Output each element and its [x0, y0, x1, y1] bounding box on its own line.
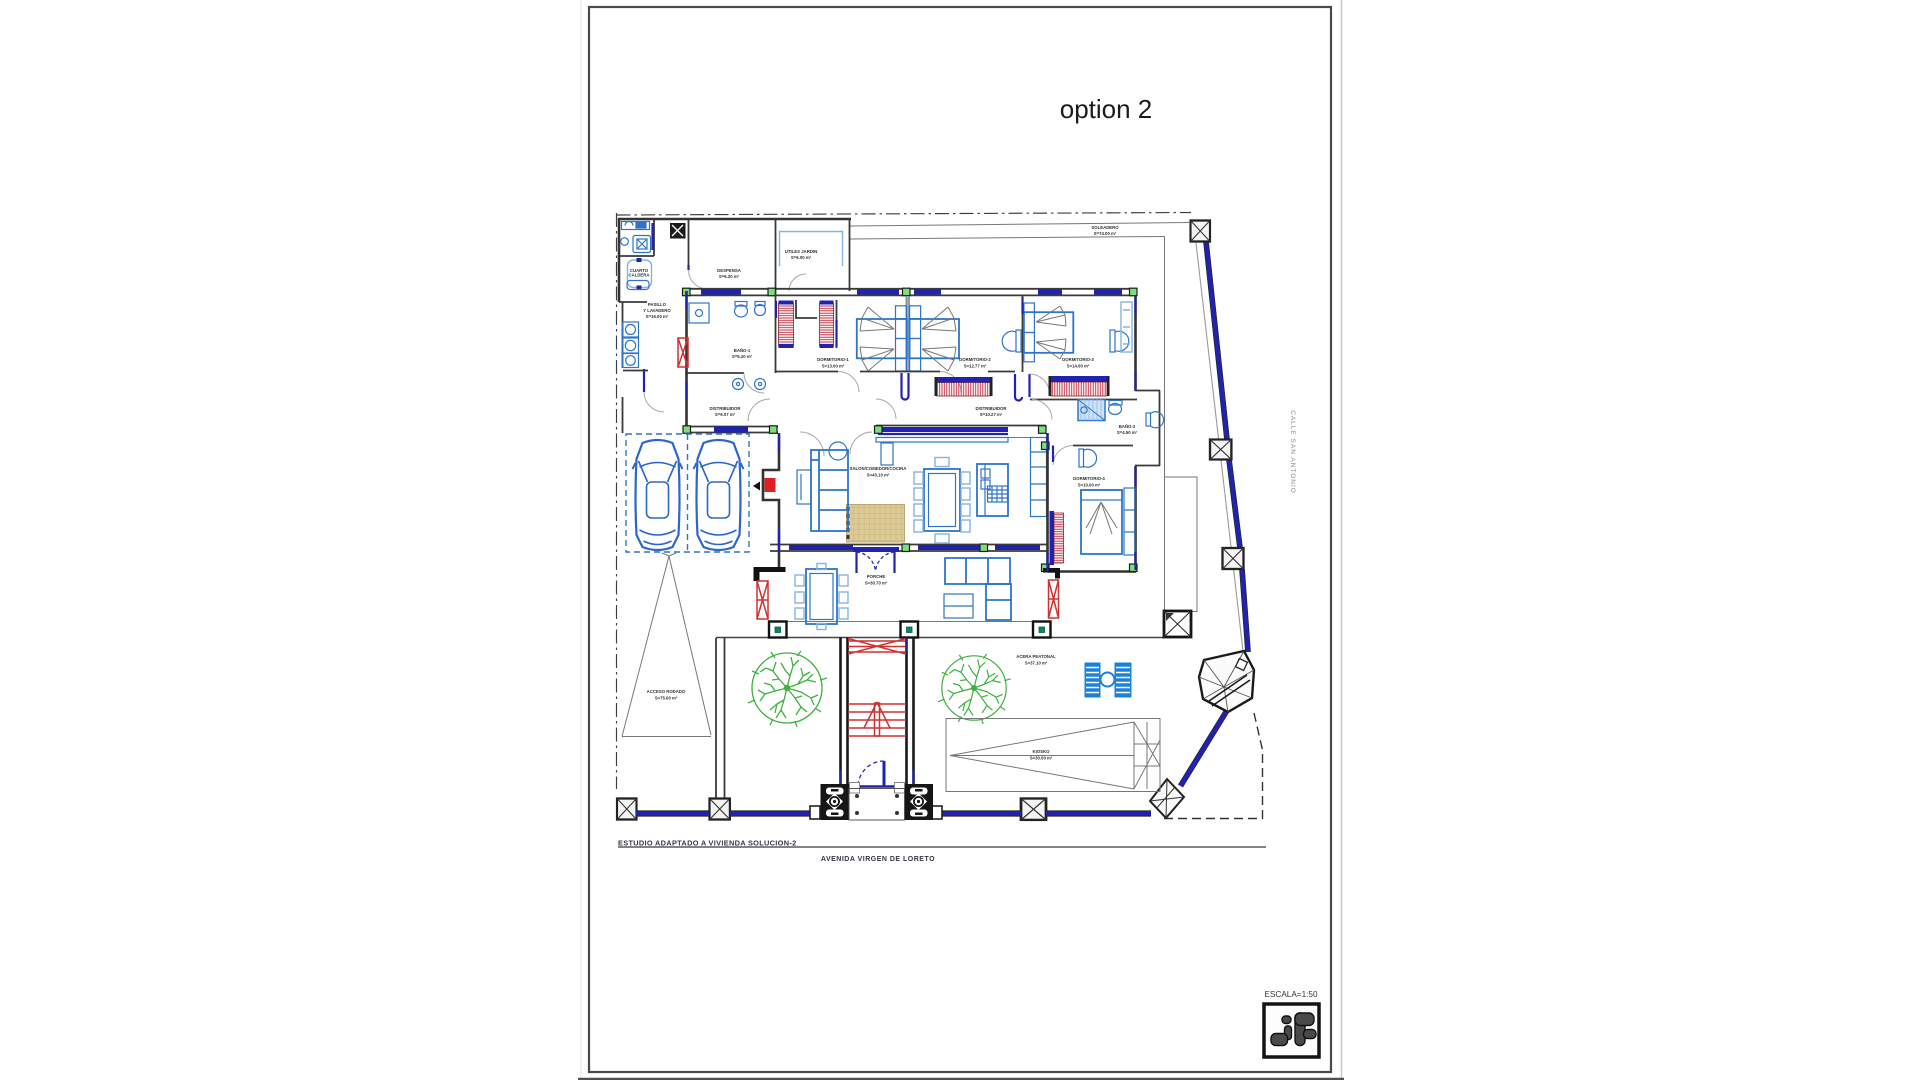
svg-text:ESTUDIO ADAPTADO A VIVIENDA S: ESTUDIO ADAPTADO A VIVIENDA SOLUCION-2	[618, 839, 797, 848]
svg-text:S=13.00 m²: S=13.00 m²	[822, 364, 845, 369]
svg-text:option 2: option 2	[1060, 94, 1153, 124]
svg-text:BAÑO-2: BAÑO-2	[1119, 424, 1136, 429]
svg-text:S=9.07 m²: S=9.07 m²	[715, 412, 736, 417]
svg-text:PORCHE: PORCHE	[867, 574, 886, 579]
svg-text:S=5.20 m²: S=5.20 m²	[732, 354, 753, 359]
svg-text:S=12.77 m²: S=12.77 m²	[964, 364, 987, 369]
svg-text:S=74.00 m²: S=74.00 m²	[1094, 231, 1117, 236]
svg-text:DORMITORIO-2: DORMITORIO-2	[959, 357, 991, 362]
svg-text:BAÑO-1: BAÑO-1	[734, 348, 751, 353]
svg-text:DESPENSA: DESPENSA	[717, 268, 741, 273]
svg-text:ACERA PEATONAL: ACERA PEATONAL	[1016, 654, 1056, 659]
svg-text:S=10.00 m²: S=10.00 m²	[1078, 483, 1101, 488]
svg-text:Y LAVADERO: Y LAVADERO	[643, 308, 671, 313]
svg-text:ESCALA=1:50: ESCALA=1:50	[1264, 990, 1317, 999]
svg-text:AVENIDA VIRGEN DE LORETO: AVENIDA VIRGEN DE LORETO	[821, 856, 935, 863]
svg-text:S=30.70 m²: S=30.70 m²	[865, 581, 888, 586]
svg-text:DORMITORIO-1: DORMITORIO-1	[817, 357, 849, 362]
svg-text:DORMITORIO-4: DORMITORIO-4	[1073, 476, 1105, 481]
svg-text:KIOSKO: KIOSKO	[1033, 749, 1051, 754]
svg-text:S=6.20 m²: S=6.20 m²	[719, 274, 740, 279]
svg-text:S=10.27 m²: S=10.27 m²	[980, 412, 1003, 417]
svg-text:PASILLO: PASILLO	[648, 302, 667, 307]
svg-text:CALLE SAN ANTONIO: CALLE SAN ANTONIO	[1289, 410, 1296, 494]
svg-text:DISTRIBUIDOR: DISTRIBUIDOR	[975, 406, 1007, 411]
svg-text:S=4.50 m²: S=4.50 m²	[1117, 430, 1138, 435]
svg-text:DISTRIBUIDOR: DISTRIBUIDOR	[709, 406, 741, 411]
svg-text:UTILES JARDIN: UTILES JARDIN	[785, 249, 817, 254]
svg-text:CALDERA: CALDERA	[628, 273, 649, 278]
svg-text:S=43.10 m²: S=43.10 m²	[867, 473, 890, 478]
svg-text:S=30.00 m²: S=30.00 m²	[1030, 756, 1053, 761]
svg-text:SALON/COMEDOR/COCINA: SALON/COMEDOR/COCINA	[850, 466, 907, 471]
svg-text:SOLEADERO: SOLEADERO	[1091, 225, 1119, 230]
svg-text:S=14.00 m²: S=14.00 m²	[1067, 364, 1090, 369]
svg-text:S=6.00 m²: S=6.00 m²	[791, 255, 812, 260]
svg-text:S=16.00 m²: S=16.00 m²	[646, 314, 669, 319]
svg-text:DORMITORIO-3: DORMITORIO-3	[1062, 357, 1094, 362]
svg-text:ACCESO RODADO: ACCESO RODADO	[647, 689, 686, 694]
svg-text:S=37.10 m²: S=37.10 m²	[1025, 661, 1048, 666]
svg-text:S=75.00 m²: S=75.00 m²	[655, 696, 678, 701]
